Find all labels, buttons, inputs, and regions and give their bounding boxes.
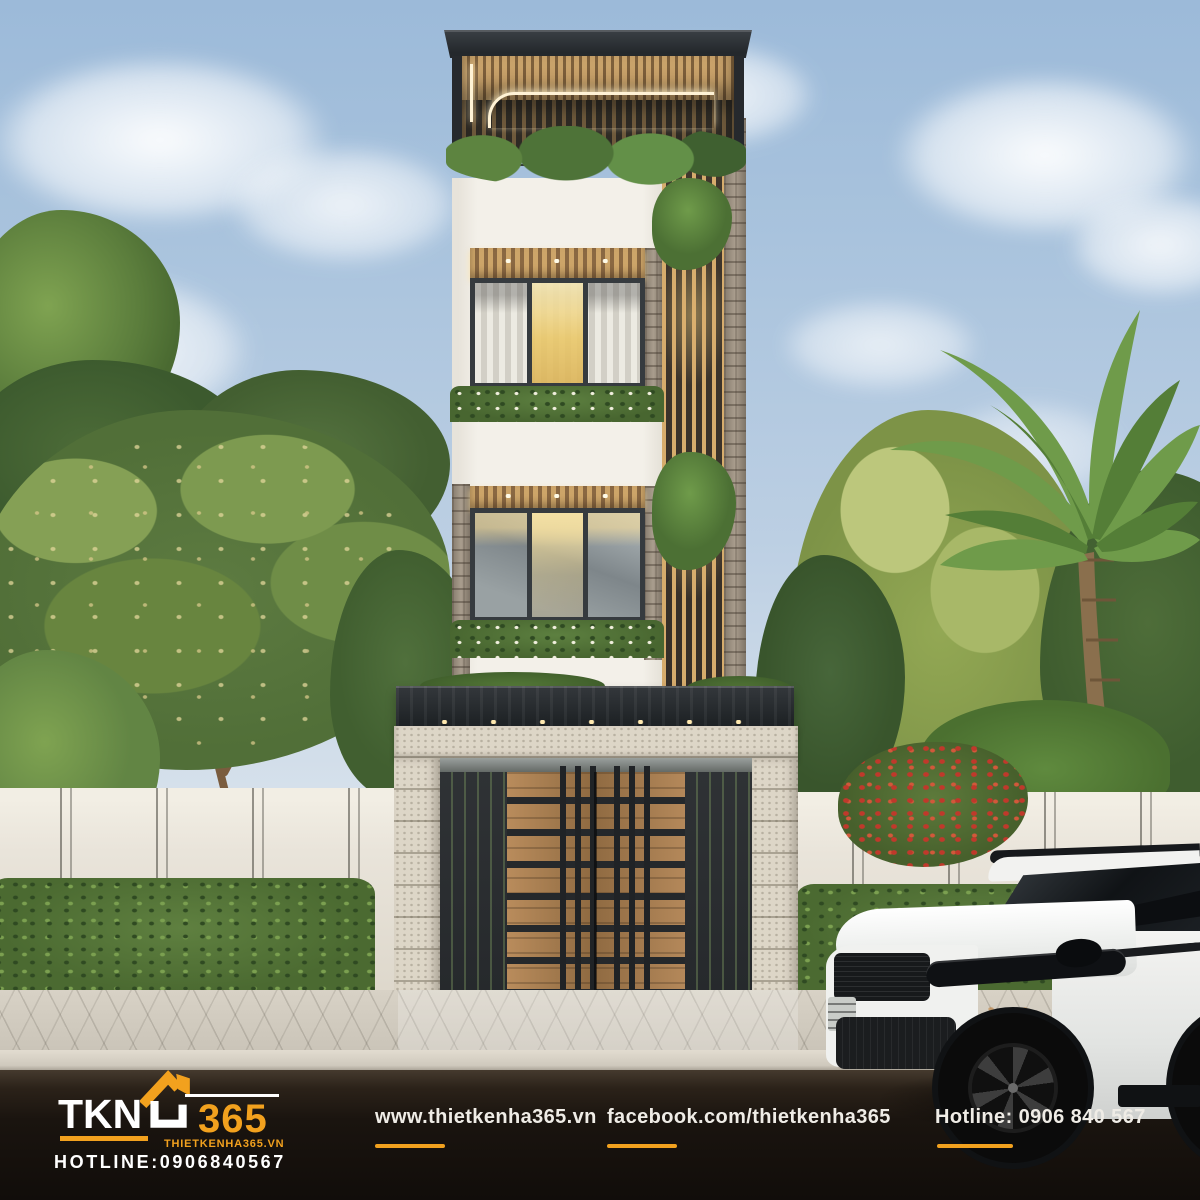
gate-metal-panel-left	[440, 772, 507, 992]
footer-underline	[375, 1144, 445, 1148]
gate-stone-pillar-right	[752, 758, 798, 998]
led-strip-light	[488, 92, 714, 128]
gate-vertical-bars	[560, 766, 604, 992]
logo-name: TKN	[58, 1094, 142, 1135]
footer-hotline: Hotline: 0906 840 567	[935, 1106, 1146, 1129]
architectural-render-scene: TKN 365 THIETKENHA365.VN HOTLINE:0906840…	[0, 0, 1200, 1200]
gate-stone-pillar-left	[394, 758, 440, 998]
rooftop-canopy	[444, 30, 752, 58]
window-mullion	[527, 513, 532, 617]
floor2-wood-soffit	[470, 486, 645, 508]
logo-number: 365	[198, 1099, 268, 1139]
floor2-window	[470, 508, 645, 622]
floor3-flower-planter	[450, 386, 664, 422]
logo-hotline: HOTLINE:0906840567	[54, 1152, 286, 1173]
recessed-lights	[484, 494, 631, 498]
interior-warm-light	[532, 513, 583, 617]
brick-pier-left	[452, 484, 470, 693]
car-wheel-hub	[1008, 1083, 1018, 1093]
floor2-flower-planter	[450, 620, 664, 658]
gate-pergola	[396, 686, 794, 728]
house-logo-icon	[140, 1070, 198, 1132]
window-mullion	[527, 283, 532, 383]
car-grille	[834, 953, 930, 1001]
led-strip-light	[470, 64, 473, 122]
car-sill	[1118, 1085, 1200, 1107]
footer-underline	[607, 1144, 677, 1148]
window-mullion	[583, 283, 588, 383]
interior-warm-light	[532, 283, 583, 383]
hedge-left	[0, 878, 375, 1003]
gate-vertical-bars	[614, 766, 652, 992]
window-mullion	[583, 513, 588, 617]
footer-website: www.thietkenha365.vn	[375, 1106, 597, 1129]
gate-stone-lintel	[394, 726, 798, 760]
gate-metal-panel-right	[685, 772, 752, 992]
gate-leaf-seam	[594, 772, 597, 992]
logo-underline	[60, 1136, 148, 1141]
recessed-lights	[484, 259, 631, 263]
car-bumper-insert	[836, 1017, 956, 1069]
footer-underline	[937, 1144, 1013, 1148]
terrace-planter-greenery	[446, 126, 746, 186]
logo-website: THIETKENHA365.VN	[164, 1138, 284, 1150]
pergola-lights	[420, 720, 770, 724]
car-front-wheel	[938, 1013, 1088, 1163]
floor3-wood-soffit	[470, 248, 645, 278]
footer-facebook: facebook.com/thietkenha365	[607, 1106, 891, 1129]
floor3-window	[470, 278, 645, 388]
tkn365-logo: TKN 365 THIETKENHA365.VN HOTLINE:0906840…	[52, 1068, 332, 1200]
